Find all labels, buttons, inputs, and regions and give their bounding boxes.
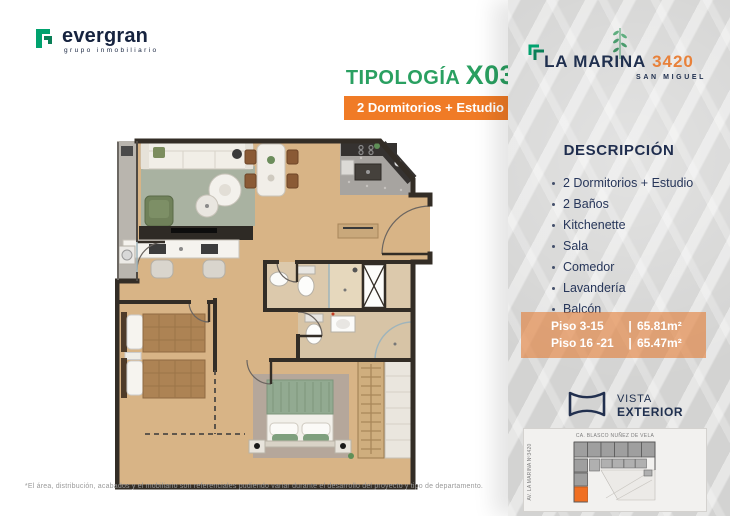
description-item: 2 Dormitorios + Estudio xyxy=(563,176,693,190)
bullet-dot xyxy=(552,308,555,311)
description-list: 2 Dormitorios + Estudio 2 Baños Kitchene… xyxy=(552,176,693,323)
evergran-logo-icon xyxy=(35,26,57,57)
list-item: Sala xyxy=(552,239,693,253)
disclaimer-text: *El área, distribución, acabados y el mo… xyxy=(0,483,508,490)
floorplan-image xyxy=(115,138,433,490)
floor-divider: | xyxy=(623,336,637,351)
description-item: Kitchenette xyxy=(563,218,626,232)
project-name: LA MARINA xyxy=(544,52,646,72)
floor-area: 65.81m² xyxy=(637,319,682,334)
typology-badge: 2 Dormitorios + Estudio xyxy=(344,96,517,120)
corner-brackets-icon xyxy=(528,44,546,67)
typology-title: TIPOLOGÍA X03 xyxy=(344,60,517,91)
street-label-top: CA. BLASCO NUÑEZ DE VELA xyxy=(524,433,706,439)
floor-info-badge: Piso 3-15 | 65.81m² Piso 16 -21 | 65.47m… xyxy=(521,312,706,358)
bullet-dot xyxy=(552,245,555,248)
panorama-icon xyxy=(566,388,608,425)
list-item: Lavandería xyxy=(552,281,693,295)
list-item: Comedor xyxy=(552,260,693,274)
bullet-dot xyxy=(552,182,555,185)
vista-line2: EXTERIOR xyxy=(617,406,683,420)
description-heading: DESCRIPCIÓN xyxy=(508,142,730,159)
bullet-dot xyxy=(552,266,555,269)
floor-row: Piso 3-15 | 65.81m² xyxy=(551,319,706,334)
plant-sprig-icon xyxy=(610,26,630,65)
project-district: SAN MIGUEL xyxy=(508,74,730,81)
floor-row: Piso 16 -21 | 65.47m² xyxy=(551,336,706,351)
typology-block: TIPOLOGÍA X03 2 Dormitorios + Estudio xyxy=(344,60,517,120)
description-item: Sala xyxy=(563,239,588,253)
project-number: 3420 xyxy=(652,52,694,72)
location-map-card: CA. BLASCO NUÑEZ DE VELA AV. LA MARINA N… xyxy=(523,428,707,512)
floorplan-figure xyxy=(115,138,433,495)
project-logo: LA MARINA 3420 SAN MIGUEL xyxy=(508,52,730,81)
description-item: Lavandería xyxy=(563,281,626,295)
list-item: Kitchenette xyxy=(552,218,693,232)
brand-tagline: grupo inmobiliario xyxy=(64,48,159,55)
floor-area: 65.47m² xyxy=(637,336,682,351)
bullet-dot xyxy=(552,287,555,290)
list-item: 2 Dormitorios + Estudio xyxy=(552,176,693,190)
typology-label: TIPOLOGÍA xyxy=(346,67,466,89)
page-root: evergran grupo inmobiliario TIPOLOGÍA X0… xyxy=(0,0,730,516)
vista-exterior-block: VISTA EXTERIOR xyxy=(566,388,683,425)
description-item: 2 Baños xyxy=(563,197,609,211)
description-item: Comedor xyxy=(563,260,614,274)
side-panel: LA MARINA 3420 SAN MIGUEL DESCRIPCIÓN 2 … xyxy=(508,0,730,516)
brand-name: evergran xyxy=(62,26,159,46)
site-map xyxy=(558,440,678,506)
brand-logo: evergran grupo inmobiliario xyxy=(35,26,159,57)
floor-range: Piso 16 -21 xyxy=(551,336,623,351)
list-item: 2 Baños xyxy=(552,197,693,211)
street-label-left: AV. LA MARINA Nº3420 xyxy=(527,440,533,504)
floor-divider: | xyxy=(623,319,637,334)
bullet-dot xyxy=(552,224,555,227)
floor-range: Piso 3-15 xyxy=(551,319,623,334)
bullet-dot xyxy=(552,203,555,206)
